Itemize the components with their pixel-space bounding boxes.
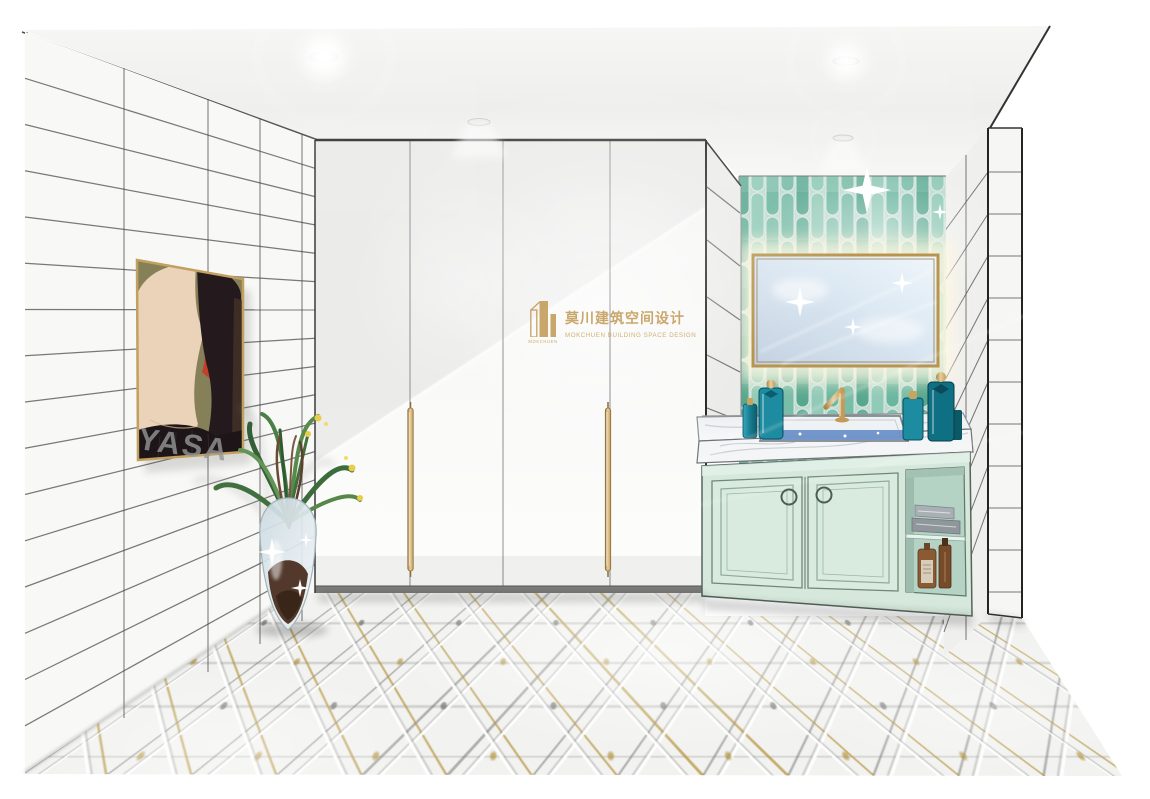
brand-icon-caption: MOKCHUEN: [528, 339, 557, 344]
handle-left: [408, 408, 413, 571]
wardrobe-kick-shadow: [315, 586, 706, 593]
brand-subtitle-en: MOKCHUEN BUILDING SPACE DESIGN: [565, 332, 696, 339]
rendering-canvas: YASA: [0, 0, 1150, 799]
cabinet-doors: [712, 473, 898, 591]
abstract-portrait-artwork: YASA: [135, 260, 251, 473]
brand-watermark: MOKCHUEN 莫川建筑空间设计 MOKCHUEN BUILDING SPAC…: [528, 301, 696, 344]
mokchuen-building-logo-icon: [530, 301, 556, 337]
brand-title-zh: 莫川建筑空间设计: [565, 308, 696, 328]
mint-green-vanity-cabinet: [702, 452, 972, 616]
open-shelf-with-towels: [906, 467, 966, 596]
sink-water: [762, 430, 907, 440]
handle-right: [605, 408, 610, 571]
